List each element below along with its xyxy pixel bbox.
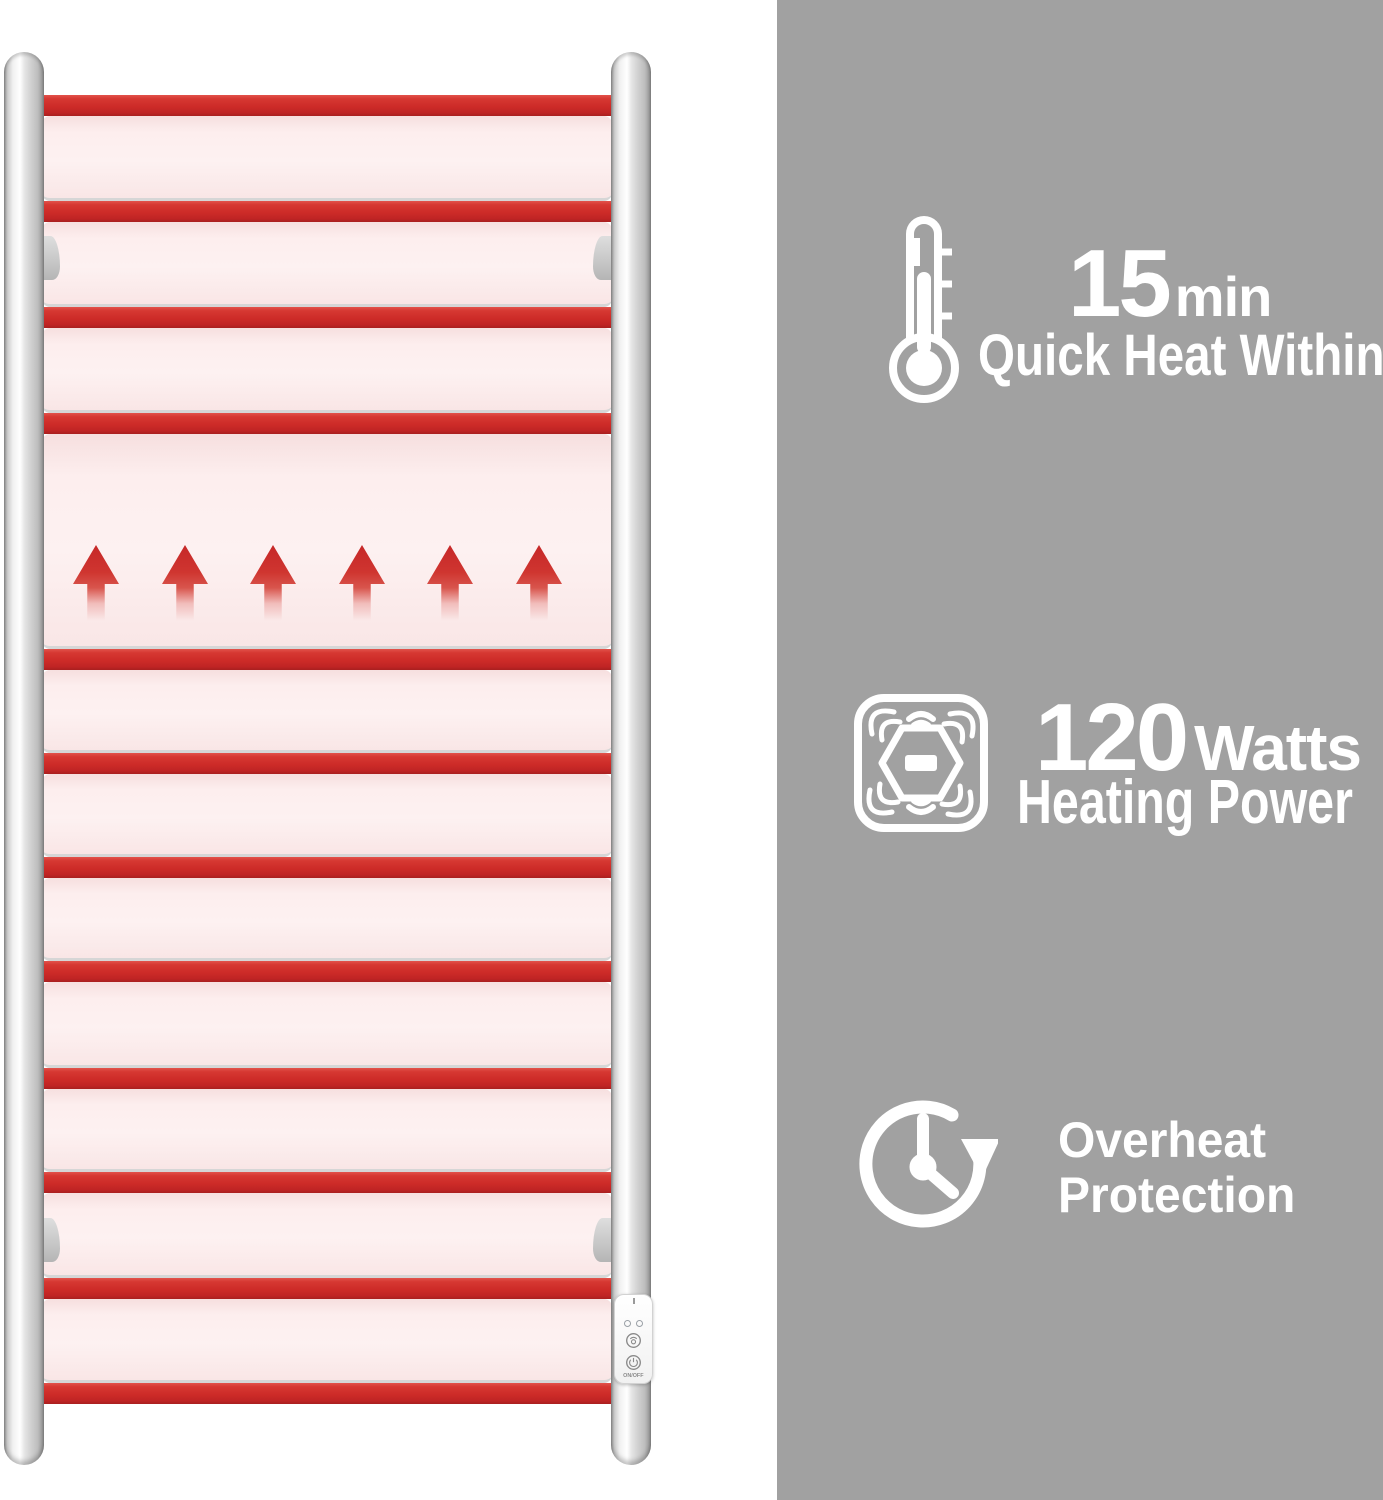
- overheat-protection-label: Overheat Protection: [1058, 1113, 1295, 1223]
- heated-panel: [42, 1089, 612, 1172]
- left-post: [4, 52, 44, 1465]
- heated-rung: [26, 1068, 620, 1089]
- quick-heat-unit: min: [1175, 265, 1272, 328]
- heated-rung: [26, 1383, 620, 1404]
- heated-panel: [42, 1299, 612, 1383]
- quick-heat-value: 15min: [1068, 236, 1271, 332]
- heated-panel: [42, 774, 612, 857]
- panel-notch: [633, 1298, 635, 1304]
- heated-panel: [42, 434, 612, 649]
- heated-rung: [26, 753, 620, 774]
- quick-heat-label: Quick Heat Within: [978, 327, 1383, 385]
- heated-rung: [26, 201, 620, 222]
- heated-rung: [26, 1278, 620, 1299]
- heated-panel: [42, 116, 612, 201]
- heated-rung: [26, 413, 620, 434]
- wall-bracket: [593, 1218, 613, 1262]
- heated-rung: [26, 961, 620, 982]
- thermometer-icon: [886, 210, 962, 406]
- overheat-clock-icon: [848, 1089, 998, 1239]
- heat-sensor-icon: [852, 692, 990, 834]
- heated-rung: [26, 95, 620, 116]
- heated-panel: [42, 878, 612, 961]
- heated-rung: [26, 307, 620, 328]
- product-infographic: ON/OFF: [0, 0, 1383, 1500]
- power-label: ON/OFF: [623, 1373, 643, 1378]
- heated-panel: [42, 982, 612, 1068]
- heated-rung: [26, 1172, 620, 1193]
- heated-panel: [42, 1193, 612, 1278]
- features-panel: 15min Quick Heat Within 120Watts Heating…: [777, 0, 1383, 1500]
- heating-power-label: Heating Power: [1017, 772, 1353, 834]
- heated-panel: [42, 670, 612, 753]
- right-post: [611, 52, 651, 1465]
- heated-rung: [26, 857, 620, 878]
- heated-panel: [42, 222, 612, 307]
- control-panel: ON/OFF: [614, 1294, 653, 1384]
- heated-rung: [26, 649, 620, 670]
- timer-button-icon: [625, 1332, 642, 1349]
- heated-panel: [42, 328, 612, 413]
- wall-bracket: [593, 236, 613, 280]
- indicator-lights: [624, 1320, 643, 1327]
- power-button-icon: [625, 1354, 642, 1371]
